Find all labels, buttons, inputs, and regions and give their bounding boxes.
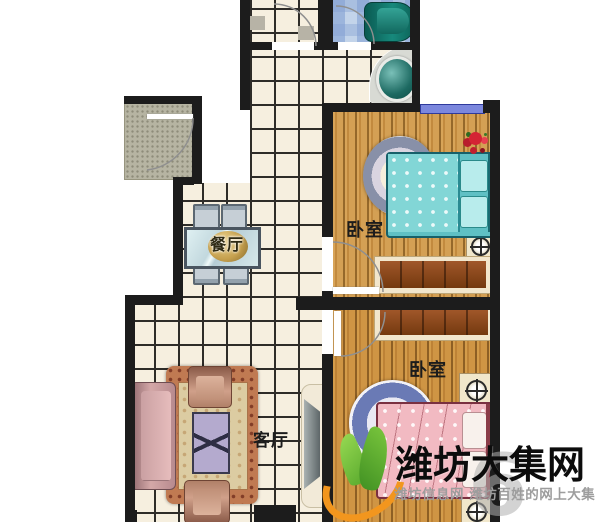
- wall: [322, 103, 420, 112]
- kitchen-gray-tile: [298, 26, 314, 40]
- living-room-label: 客厅: [253, 433, 289, 450]
- bed-teal-quilt: [388, 154, 460, 232]
- bedroom-top-door-opening: [322, 237, 333, 291]
- bedroom-bottom-door-opening: [322, 310, 333, 354]
- wardrobe: [374, 256, 493, 294]
- window: [420, 104, 485, 114]
- flower-pot: [460, 124, 492, 158]
- hall-floor-mid: [250, 103, 322, 183]
- bathtub-inner: [377, 8, 409, 34]
- armchair: [188, 366, 232, 408]
- armchair: [184, 480, 230, 522]
- wall: [125, 300, 135, 512]
- entry-door-leaf: [147, 114, 193, 119]
- dining-room-label: 餐厅: [210, 237, 244, 253]
- bedroom-top-label: 卧室: [346, 222, 384, 240]
- wall: [125, 510, 137, 522]
- kitchen-gray-tile: [250, 16, 265, 30]
- bed-teal-pillow: [460, 196, 488, 228]
- bathtub: [364, 2, 416, 42]
- bedroom-bottom-door-leaf: [334, 311, 341, 356]
- watermark-title: 潍坊大集网: [395, 446, 585, 484]
- wall: [254, 505, 296, 522]
- coffee-table: [192, 412, 230, 474]
- dining-chair: [193, 204, 220, 229]
- compass-knob-icon: [471, 237, 490, 256]
- wall: [412, 45, 420, 112]
- floor-plan: 餐厅 卧室 卧室 客厅 6 潍坊大集网 潍坊信息网 潍坊百姓的网上大集: [0, 0, 600, 522]
- compass-knob-icon: [466, 380, 487, 401]
- dining-chair: [221, 204, 247, 229]
- wall: [192, 96, 202, 184]
- bathroom-door-opening: [338, 42, 371, 50]
- wall: [296, 297, 500, 310]
- wall: [124, 96, 202, 104]
- watermark-logo-icon: [315, 425, 405, 513]
- wall: [240, 42, 420, 50]
- bed-teal-pillow: [460, 160, 488, 192]
- bedroom-bottom-label: 卧室: [409, 362, 447, 380]
- wall: [173, 184, 183, 298]
- watermark-subtitle: 潍坊信息网 潍坊百姓的网上大集: [394, 489, 595, 503]
- sofa: [130, 382, 176, 490]
- kitchen-door-opening: [272, 42, 314, 50]
- wardrobe: [374, 305, 495, 341]
- wall: [240, 0, 250, 110]
- bedroom-top-door-leaf: [333, 287, 379, 294]
- sofa-cushions: [141, 391, 171, 481]
- bed-teal: [386, 152, 498, 238]
